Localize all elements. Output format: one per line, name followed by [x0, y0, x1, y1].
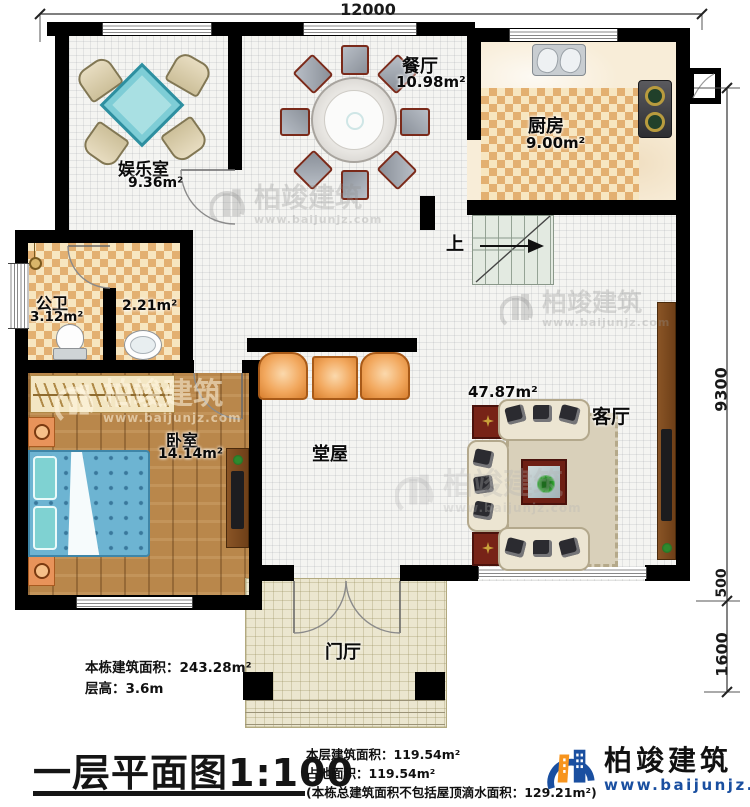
wall-hall-bottom-left: [262, 565, 294, 581]
brand-logo-icon: [540, 744, 596, 796]
wall-entertainment-left: [55, 22, 69, 230]
stairs-direction-label: 上: [446, 230, 464, 256]
dining-table: [311, 77, 397, 163]
dining-chair: [341, 170, 369, 200]
porch-step-line: [245, 724, 445, 725]
room-area-bedroom: 14.14m²: [158, 446, 223, 462]
window-kitchen-top: [509, 29, 618, 41]
wall-bath-top: [15, 230, 193, 243]
sink-basin: [535, 46, 561, 75]
dining-table-hub: [346, 112, 364, 130]
brand-website: www.baijunjz.com: [604, 776, 750, 794]
toilet-tank: [53, 348, 87, 360]
porch-step-line: [245, 712, 445, 713]
dimension-right-total: 9300: [712, 365, 731, 415]
room-area-living: 47.87m²: [468, 383, 538, 401]
sofa-cushion: [473, 475, 494, 494]
window-bathroom-left: [8, 263, 29, 329]
room-area-kitchen: 9.00m²: [526, 134, 585, 152]
wall-dining-stair-stub: [420, 196, 435, 230]
sofa-cushion: [472, 448, 494, 469]
dining-chair: [341, 45, 369, 75]
wall-kitchen-left: [467, 28, 481, 140]
porch-step-line: [245, 700, 445, 701]
room-label-living: 客厅: [592, 402, 630, 429]
wall-living-bottom-b: [645, 565, 690, 581]
staircase: [472, 215, 554, 285]
sofa-top: [498, 399, 590, 441]
room-area-entertainment: 9.36m²: [128, 175, 183, 191]
wardrobe: [30, 375, 175, 413]
dimension-right-porch: 1600: [713, 630, 732, 680]
kitchen-sink: [532, 44, 586, 76]
lamp: [34, 424, 50, 440]
brand-name: 柏竣建筑: [604, 746, 750, 775]
bed: [28, 450, 150, 557]
kitchen-stove: [638, 80, 672, 138]
window-bedroom-bottom: [76, 597, 193, 608]
washbasin-bowl: [130, 336, 156, 354]
sofa-cushion: [558, 537, 581, 558]
bed-pillow: [33, 506, 57, 550]
dresser-tv: [231, 471, 244, 529]
lamp: [34, 563, 50, 579]
compass-star: [482, 542, 494, 554]
sofa-cushion: [504, 404, 527, 425]
bed-sheet-fold: [68, 452, 108, 555]
sink-basin: [558, 46, 584, 75]
wall-bath-right: [180, 230, 193, 373]
floor-height: 层高：3.6m: [85, 679, 252, 700]
dimension-top: 12000: [333, 0, 403, 19]
dining-chair: [280, 108, 310, 136]
brand-logo: 柏竣建筑 www.baijunjz.com: [540, 744, 750, 796]
wall-entertainment-dining-divider: [228, 22, 242, 170]
sofa-cushion: [533, 405, 552, 422]
plant-sprig: [662, 543, 672, 553]
hall-side-table: [312, 356, 358, 400]
wall-bedroom-top-a: [15, 360, 194, 373]
plant-on-table: [537, 475, 555, 493]
nightstand-lamp: [28, 417, 55, 447]
sofa-cushion: [473, 500, 495, 520]
shower-hose-line: [34, 243, 35, 259]
tv-screen: [661, 429, 672, 521]
dimension-right-step: 500: [714, 563, 730, 603]
bed-pillow: [33, 456, 57, 500]
building-notes-left: 本栋建筑面积：243.28m² 层高：3.6m: [85, 658, 252, 700]
bedroom-dresser: [226, 448, 249, 548]
room-area-bathroom: 3.12m²: [30, 309, 83, 325]
wall-kitchen-bottom: [467, 200, 690, 215]
room-area-washroom: 2.21m²: [122, 298, 177, 314]
sofa-cushion: [504, 537, 527, 558]
shower-drain: [29, 257, 42, 270]
dining-chair: [400, 108, 430, 136]
flue-box: [688, 68, 721, 104]
compass-star: [482, 415, 494, 427]
sofa-cushion: [558, 404, 581, 425]
hall-armchair: [258, 352, 308, 400]
porch-pillar-right: [415, 672, 445, 700]
sofa-cushion: [533, 540, 552, 557]
stove-burner: [645, 112, 665, 132]
window-dining-top: [303, 23, 417, 35]
sofa-bottom: [498, 527, 590, 571]
hall-armchair: [360, 352, 410, 400]
room-area-dining: 10.98m²: [396, 73, 466, 91]
wall-living-right: [676, 230, 690, 581]
room-label-hall: 堂屋: [312, 440, 348, 466]
sofa-left: [467, 440, 509, 532]
wall-hall-feature: [247, 338, 417, 352]
floor-plan-sheet: 柏竣建筑 www.baijunjz.com 柏竣建筑 www.baijunjz.…: [0, 0, 750, 807]
room-label-foyer: 门厅: [325, 638, 361, 664]
tv-cabinet: [657, 302, 676, 560]
coffee-table: [521, 459, 567, 505]
nightstand-lamp: [28, 556, 55, 586]
entertainment-table-top: [112, 75, 171, 134]
window-entertainment-top: [102, 23, 212, 35]
washbasin: [124, 330, 162, 360]
plant-sprig: [233, 455, 243, 465]
total-building-area: 本栋建筑面积：243.28m²: [85, 658, 252, 679]
sheet-title-underline: [33, 791, 305, 796]
stove-burner: [645, 86, 665, 106]
wall-living-bottom-a: [400, 565, 478, 581]
wardrobe-rod: [33, 394, 172, 396]
